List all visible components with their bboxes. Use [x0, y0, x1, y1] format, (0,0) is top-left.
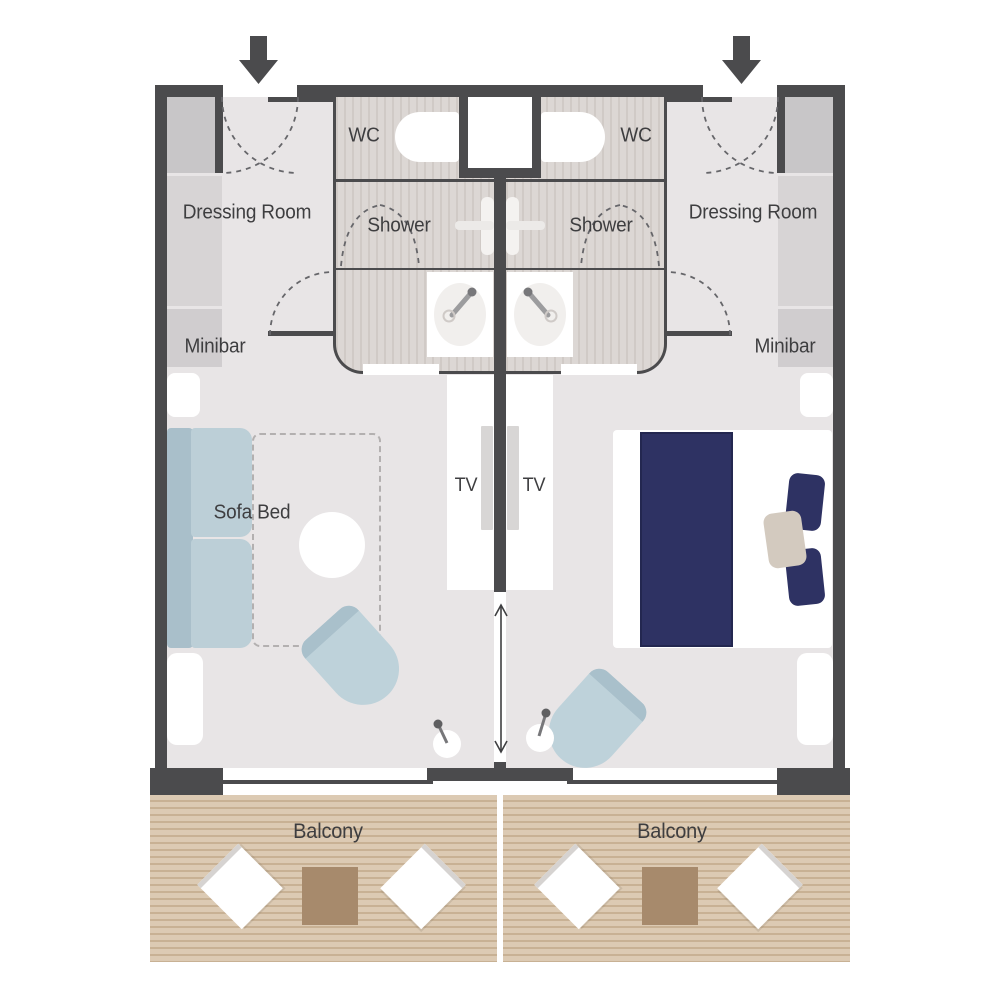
tv-label-left: TV — [455, 475, 478, 497]
shower-mixer-bar-left — [455, 221, 494, 230]
closet-partition-right — [777, 85, 785, 173]
wc-shower-divider-right — [506, 179, 664, 182]
bottom-wall-right-corner — [777, 768, 850, 795]
wardrobe-left — [167, 176, 222, 306]
side-table-right — [800, 373, 833, 417]
sofa-back — [167, 428, 193, 648]
centre-wall — [494, 178, 506, 592]
dressing-room-label-left: Dressing Room — [183, 202, 311, 225]
entrance-door-leaf-left — [268, 97, 333, 102]
nightstand-right — [797, 653, 833, 745]
sofa-cushion-bottom — [191, 539, 252, 648]
round-table — [299, 512, 365, 578]
tv-icon-right — [505, 424, 521, 532]
closet-partition-left — [215, 85, 223, 173]
tv-label-right: TV — [523, 475, 546, 497]
right-outer-wall — [833, 85, 845, 775]
side-table-left — [167, 373, 200, 417]
entry-arrow-icon-left — [239, 36, 278, 84]
minibar-label-right: Minibar — [755, 336, 816, 359]
balcony-table-right — [642, 867, 698, 925]
entrance-door-leaf-right — [667, 97, 732, 102]
bottom-wall-left-corner — [150, 768, 223, 795]
wc-label-left: WC — [348, 125, 379, 148]
bed-duvet — [640, 432, 733, 647]
shower-label-left: Shower — [367, 215, 430, 238]
balcony-door-right — [567, 780, 777, 784]
shaft-wall-right — [532, 97, 541, 168]
floor-plan: Dressing Room Dressing Room Minibar Mini… — [0, 0, 1000, 1000]
shower-label-right: Shower — [569, 215, 632, 238]
bottom-wall-right-mid — [494, 768, 573, 781]
shaft-wall-left — [459, 97, 468, 168]
shaft-wall-bottom — [459, 168, 541, 178]
tv-icon-left — [479, 424, 495, 532]
balcony-table-left — [302, 867, 358, 925]
sofa-bed-label: Sofa Bed — [214, 502, 291, 525]
bathroom-door-opening-right — [561, 364, 637, 375]
wc-label-right: WC — [620, 125, 651, 148]
balcony-door-left — [223, 780, 433, 784]
top-wall-middle-segment — [297, 85, 703, 97]
basin-oval-left — [434, 283, 486, 346]
bathroom-door-opening-left — [363, 364, 439, 375]
bathroom-door-leaf-right — [667, 331, 732, 336]
left-outer-wall — [155, 85, 167, 775]
connecting-door-opening — [494, 592, 506, 762]
closet-right — [785, 97, 833, 173]
wardrobe-right — [778, 176, 833, 306]
toilet-icon-right — [541, 112, 605, 162]
balcony-label-right: Balcony — [637, 820, 707, 844]
bathroom-door-leaf-left — [268, 331, 333, 336]
balcony-label-left: Balcony — [293, 820, 363, 844]
console-left — [167, 653, 203, 745]
shower-sink-divider-left — [336, 268, 494, 270]
wc-shower-divider-left — [336, 179, 494, 182]
dressing-room-label-right: Dressing Room — [689, 202, 817, 225]
shower-sink-divider-right — [506, 268, 664, 270]
toilet-icon-left — [395, 112, 459, 162]
basin-oval-right — [514, 283, 566, 346]
bed-cushion — [762, 510, 807, 570]
closet-left — [167, 97, 215, 173]
minibar-label-left: Minibar — [185, 336, 246, 359]
shower-mixer-bar-right — [506, 221, 545, 230]
entry-arrow-icon-right — [722, 36, 761, 84]
service-shaft — [468, 97, 532, 168]
